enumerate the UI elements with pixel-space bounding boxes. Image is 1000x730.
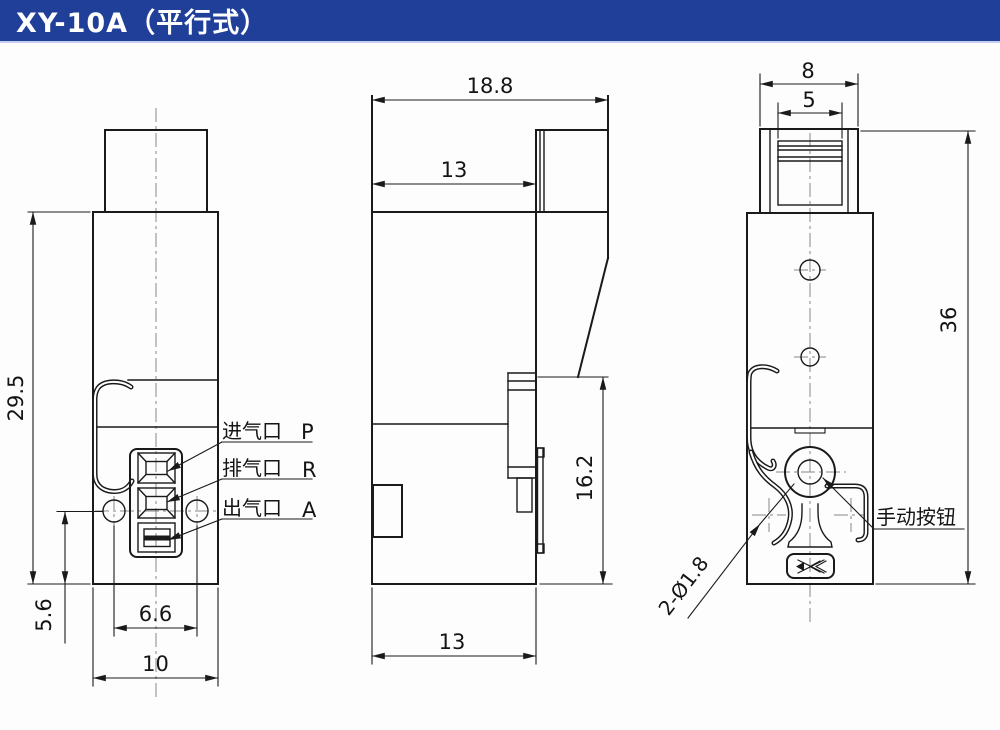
port-a-code: A [302,498,317,522]
dim-6-6-text: 6.6 [139,602,172,626]
flow-symbol [796,560,826,573]
dim-5-6-text: 5.6 [32,598,56,631]
dim-10-text: 10 [142,652,169,676]
dim-13-bottom: 13 [372,588,536,664]
port-r-code: R [302,458,317,482]
side-port-housing [508,373,544,553]
dim-16-2: 16.2 [540,377,612,584]
connector-top [760,129,858,213]
back-view: 8 5 36 手动按钮 [653,59,975,624]
port-labels: 进气口 P 排气口 R 出气口 A [167,419,317,540]
drawing-sheet: XY-10A（平行式） [0,0,1000,730]
dim-13-top: 13 [372,158,536,184]
port-p-label: 进气口 [222,419,282,443]
side-outline [372,96,608,584]
dim-5: 5 [778,88,842,138]
dim-13-bottom-text: 13 [439,630,466,654]
port-r-label: 排气口 [222,456,282,480]
dim-18-8: 18.8 [372,74,608,100]
technical-drawing-canvas: 进气口 P 排气口 R 出气口 A 29.5 [0,0,1000,730]
port-p-code: P [301,420,314,444]
dim-18-8-text: 18.8 [467,74,514,98]
manual-button-text: 手动按钮 [876,505,956,529]
dim-8-text: 8 [801,59,814,83]
dim-5-text: 5 [802,88,815,112]
dim-13-top-text: 13 [441,158,468,182]
gasket-plate [538,448,544,553]
side-slot [373,485,402,537]
mounting-clip-front [95,382,132,492]
dim-29-5-text: 29.5 [4,375,28,422]
port-a-label: 出气口 [222,496,282,520]
mount-holes-label: 2-Ø1.8 [653,484,794,620]
dim-16-2-text: 16.2 [573,455,597,502]
front-view: 进气口 P 排气口 R 出气口 A 29.5 [4,108,317,697]
dim-5-6: 5.6 [32,512,102,644]
dim-29-5: 29.5 [4,212,90,584]
mount-holes-text: 2-Ø1.8 [653,552,713,620]
side-view: 18.8 13 16.2 13 [372,74,612,664]
dim-36-text: 36 [937,307,961,334]
